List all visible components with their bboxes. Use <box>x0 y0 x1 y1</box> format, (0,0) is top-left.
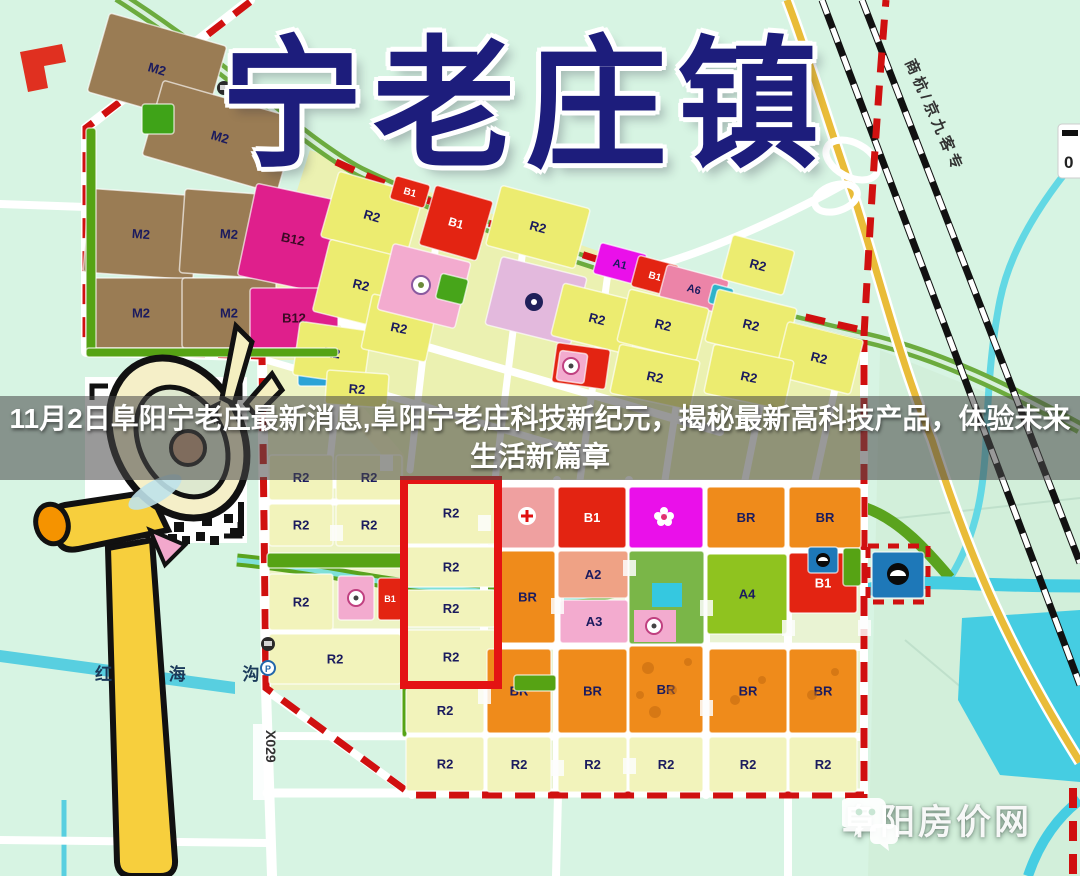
parcel-label: B1 <box>584 510 601 525</box>
map-parcel-A3: A3 <box>560 600 628 643</box>
map-parcel-R2: R2 <box>406 590 496 627</box>
parcel-label: R2 <box>348 381 366 397</box>
parcel-label: R2 <box>443 601 460 616</box>
svg-text:X029: X029 <box>263 730 279 763</box>
parcel-label: A2 <box>585 567 602 582</box>
map-parcel-R2: R2 <box>406 547 496 587</box>
map-parcel-BR: BR <box>558 649 627 733</box>
headline-banner: 11月2日阜阳宁老庄最新消息,阜阳宁老庄科技新纪元，揭秘最新高科技产品，体验未来… <box>0 396 1080 480</box>
parcel-label: R2 <box>584 757 601 772</box>
map-parcel-R2: R2 <box>629 737 703 792</box>
parcel-label: BR <box>737 510 756 525</box>
parcel-label: R2 <box>293 595 310 610</box>
reservoir-icon <box>887 563 909 585</box>
map-title-text: 宁老庄镇 <box>221 26 829 185</box>
map-parcel-BR: BR <box>500 551 555 643</box>
map-parcel-B1: B1 <box>558 487 626 548</box>
parcel-label: B1 <box>815 576 832 591</box>
parcel-label: B1 <box>384 594 396 604</box>
parcel-label: BR <box>518 590 537 605</box>
parcel-label: R2 <box>437 757 454 772</box>
map-title: 宁老庄镇 <box>0 28 1050 184</box>
hospital-icon <box>518 507 536 525</box>
map-parcel-A4: A4 <box>707 554 787 634</box>
map-parcel-R2: R2 <box>406 630 496 684</box>
map-parcel-R2: R2 <box>406 737 484 791</box>
headline-line1: 11月2日阜阳宁老庄最新消息,阜阳宁老庄科技新纪元，揭秘最新高科技产品，体验未来 <box>10 400 1071 438</box>
parcel-label: R2 <box>443 560 460 575</box>
map-parcel-R2: R2 <box>406 688 484 733</box>
parcel-label: R2 <box>658 757 675 772</box>
parcel-label: R2 <box>740 757 757 772</box>
map-parcel <box>843 548 861 586</box>
map-parcel-BR: BR <box>629 646 703 733</box>
bus-icon <box>261 637 275 651</box>
park-icon <box>412 276 430 294</box>
parcel-label: BR <box>739 684 758 699</box>
parcel-label: M2 <box>132 306 150 321</box>
map-parcel-R2: R2 <box>789 737 857 792</box>
school-icon <box>348 590 364 606</box>
map-parcel <box>435 273 468 305</box>
parcel-label: M2 <box>219 226 238 242</box>
parcel-label: BR <box>816 510 835 525</box>
map-parcel <box>267 553 405 568</box>
map-parcel <box>86 348 338 357</box>
map-parcel-B1: B1 <box>378 578 402 620</box>
map-parcel-R2: R2 <box>336 504 402 546</box>
canal-label: 红 海 沟 <box>95 664 285 684</box>
map-parcel-R2: R2 <box>487 737 551 792</box>
map-parcel-BR: BR <box>707 487 785 548</box>
map-parcel-M2: M2 <box>86 278 196 348</box>
map-parcel-R2: R2 <box>709 737 787 792</box>
map-parcel-R2: R2 <box>406 482 496 544</box>
screenshot-root: M2M2M2M2M2M2B12B12U9R2R2R2R2R2B1B1R2A1B1… <box>0 0 1080 876</box>
reservoir-icon <box>816 553 830 567</box>
parcel-label: R2 <box>327 652 344 667</box>
parcel-label: R2 <box>443 650 460 665</box>
map-parcel-A2: A2 <box>558 551 628 598</box>
map-parcel-BR: BR <box>709 649 787 733</box>
parcel-label: R2 <box>293 518 310 533</box>
parcel-label: R2 <box>815 757 832 772</box>
parcel-label: R2 <box>443 506 460 521</box>
school-icon <box>646 618 662 634</box>
parcel-label: M2 <box>220 306 238 321</box>
map-parcel-R2: R2 <box>558 737 627 792</box>
parcel-label: A3 <box>586 614 603 629</box>
chat-bubbles-icon <box>842 794 902 852</box>
parcel-label: R2 <box>511 757 528 772</box>
parcel-label: BR <box>583 684 602 699</box>
parcel-label: A4 <box>739 587 756 602</box>
parcel-label: R2 <box>437 703 454 718</box>
scale-zero: 0 <box>1064 153 1073 172</box>
map-parcel-BR: BR <box>789 649 857 733</box>
watermark: 阜阳房价网 <box>842 794 1032 845</box>
map-parcel-BR: BR <box>789 487 861 548</box>
pond <box>652 583 682 607</box>
parcel-label: R2 <box>361 518 378 533</box>
map-parcel-R2: R2 <box>269 504 333 546</box>
map-parcel-R2: R2 <box>269 634 401 684</box>
map-parcel <box>514 675 556 691</box>
scale-widget: 0 <box>1058 124 1080 178</box>
civic-icon <box>525 293 543 311</box>
parcel-label: M2 <box>131 226 150 242</box>
map-parcel-R2: R2 <box>269 574 333 630</box>
headline-line2: 生活新篇章 <box>470 438 610 476</box>
school-icon <box>563 358 579 374</box>
